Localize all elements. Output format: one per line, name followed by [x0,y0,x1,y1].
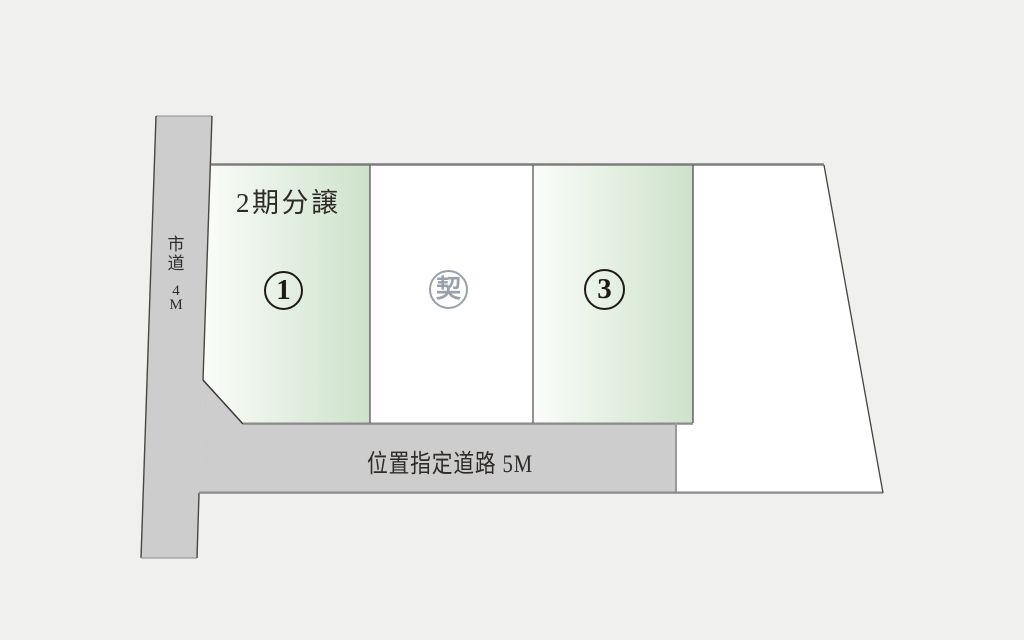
phase-label: 2期分譲 [236,181,341,220]
city-road-width-number: 4 [172,284,180,298]
lot-3-number: 3 [597,275,612,304]
city-road-width-unit: M [169,298,182,312]
lot-1-number: 1 [276,276,291,305]
lot-1-badge: 1 [264,271,303,310]
neighbor-parcel-shape [676,165,883,493]
city-road-char-1: 市 [168,235,185,254]
lot-contracted-mark: 契 [436,277,461,302]
site-plan: 2期分譲 1 契 3 市 道 4 M 位置指定道路 5M [0,0,1024,640]
site-plan-svg [0,0,1024,640]
city-road-label: 市 道 4 M [162,235,190,312]
designated-road-label: 位置指定道路 5M [367,444,533,480]
city-road-char-2: 道 [168,254,185,273]
lot-contracted-badge: 契 [429,270,468,309]
lot-3-badge: 3 [584,269,625,310]
